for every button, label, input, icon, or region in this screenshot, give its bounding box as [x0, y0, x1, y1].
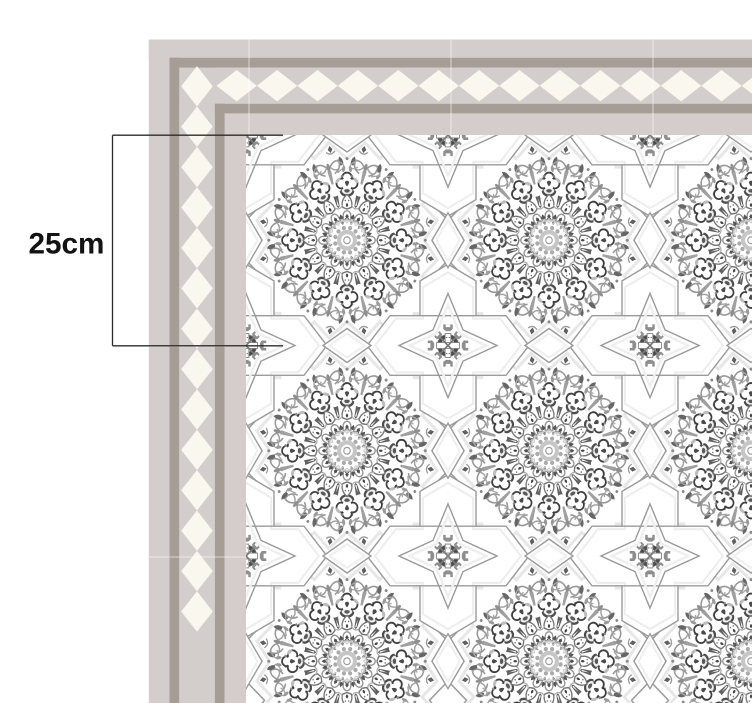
svg-text:25cm: 25cm [29, 227, 105, 260]
